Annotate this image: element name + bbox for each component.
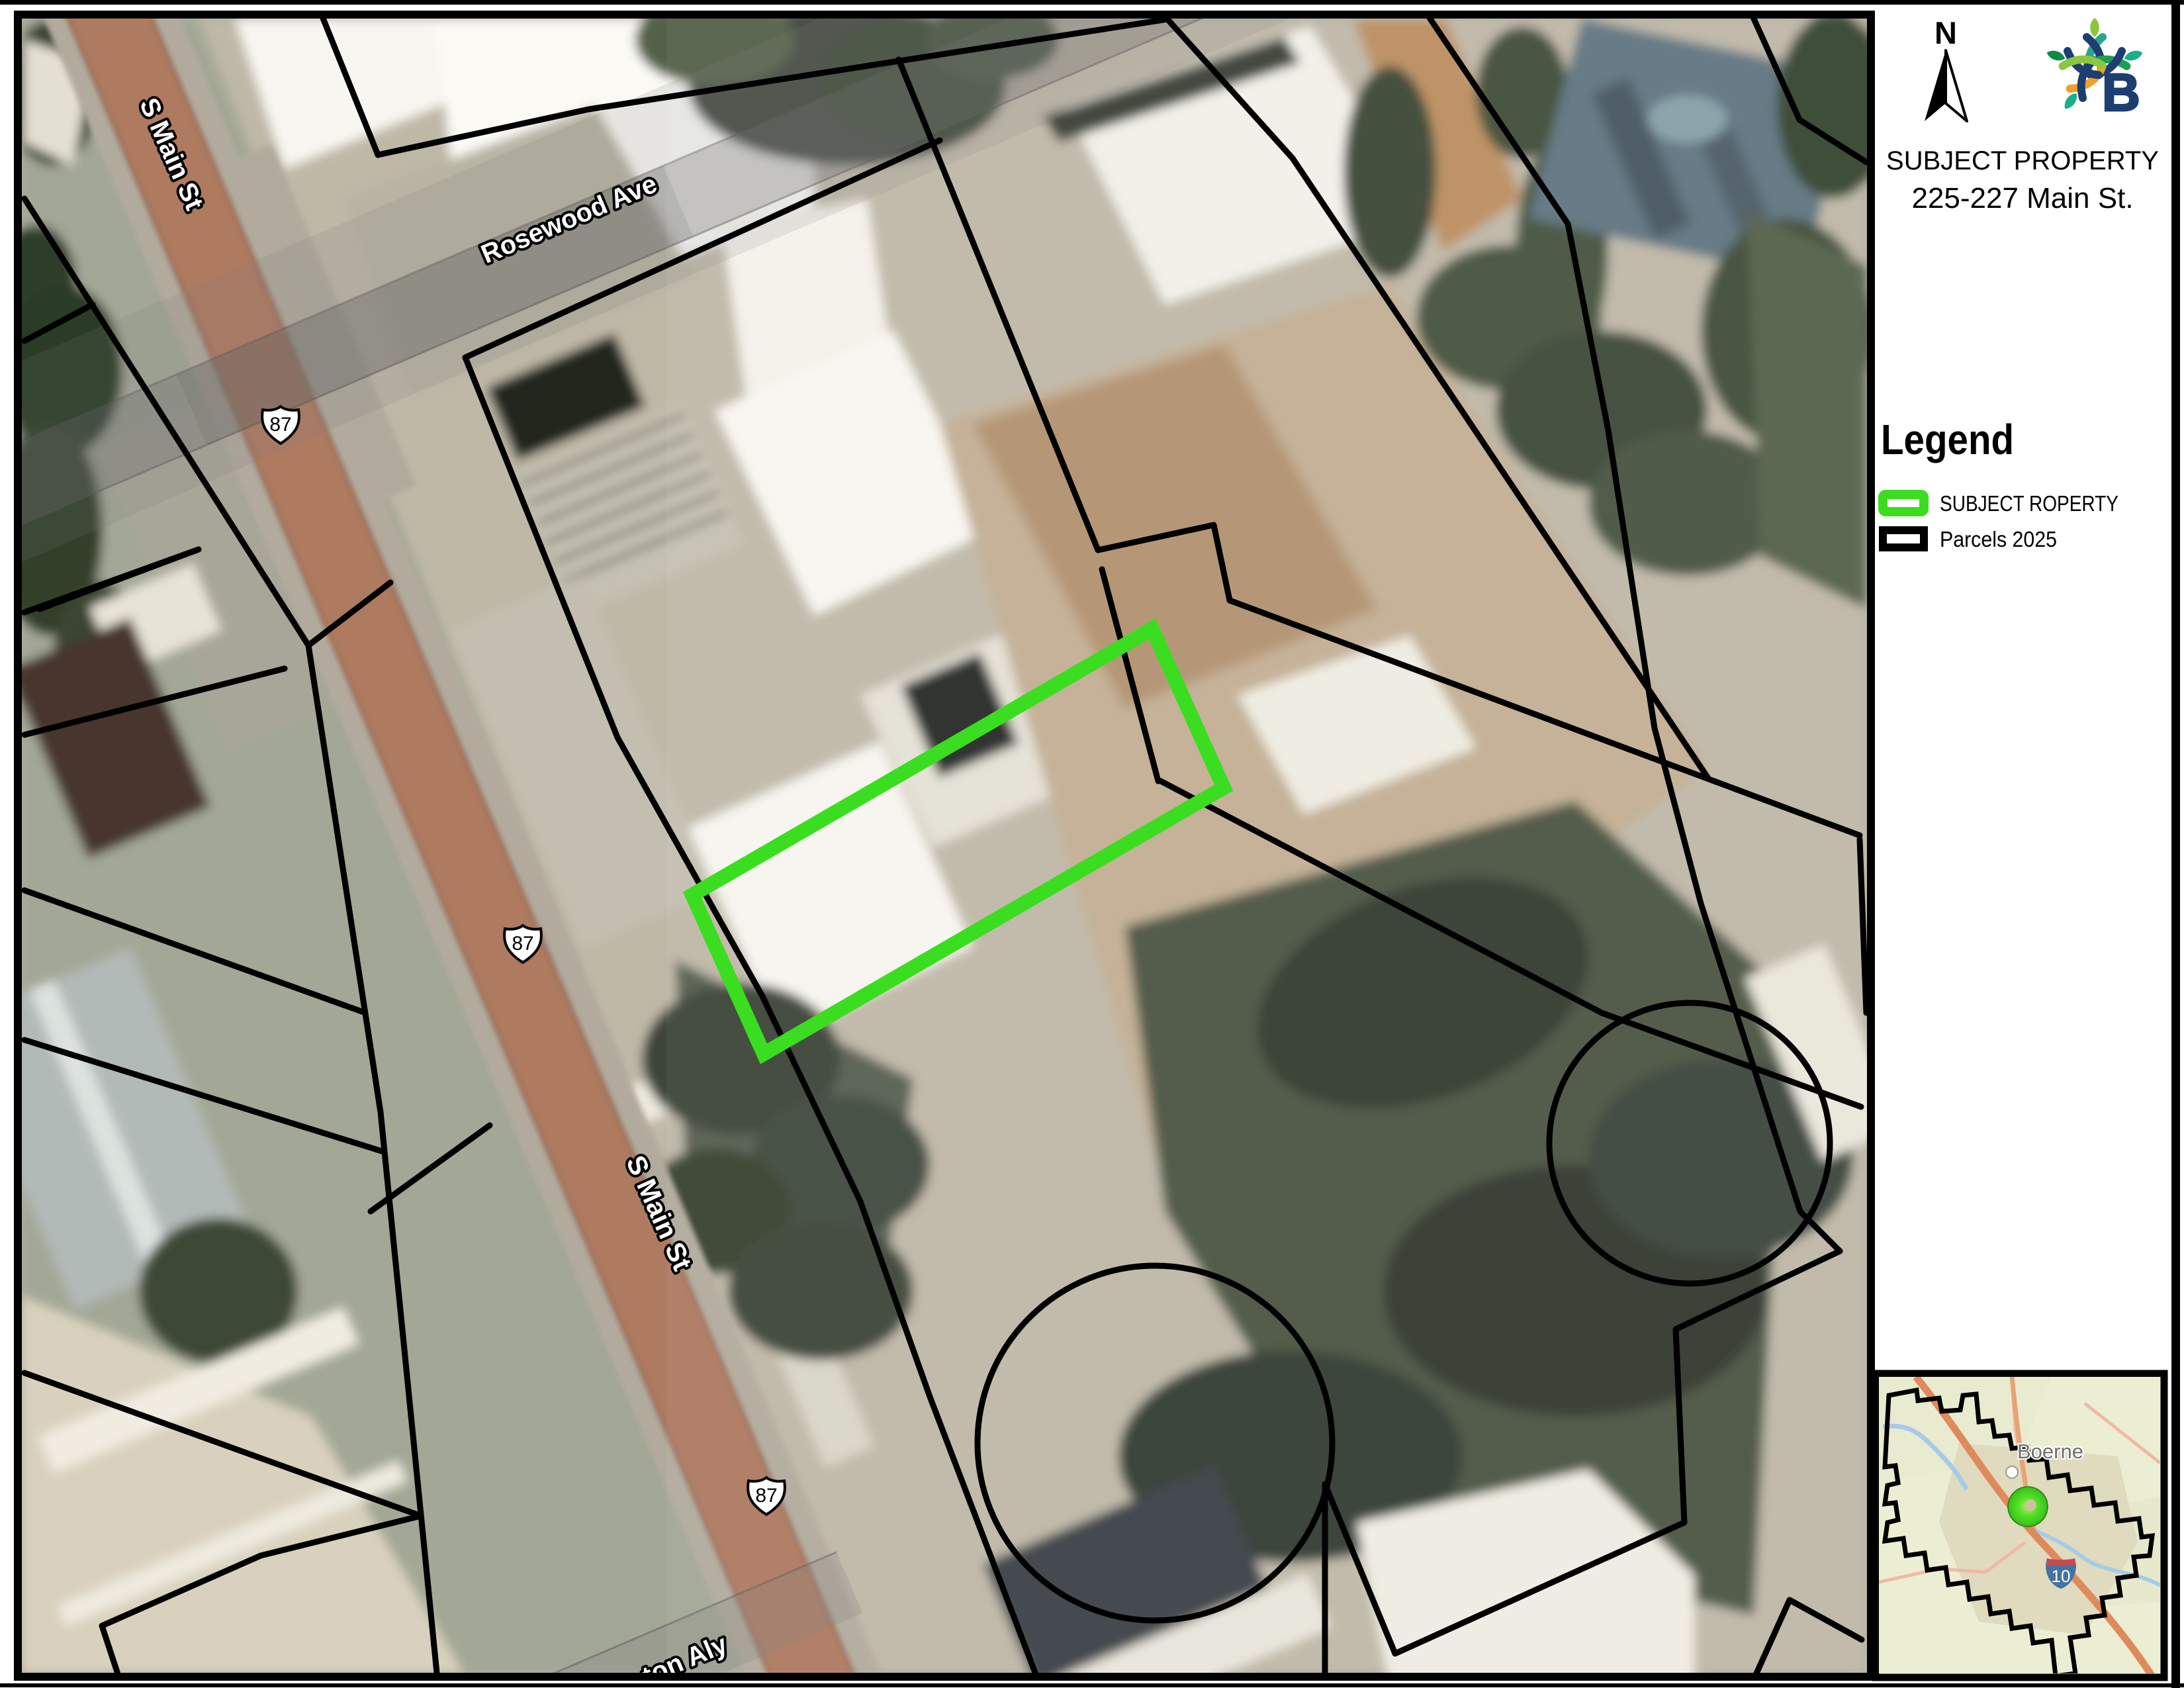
svg-text:Boerne: Boerne bbox=[2017, 1440, 2083, 1463]
svg-text:87: 87 bbox=[512, 933, 533, 955]
svg-text:N: N bbox=[1934, 15, 1957, 50]
svg-text:Parcels 2025: Parcels 2025 bbox=[1940, 527, 2057, 551]
svg-text:225-227 Main St.: 225-227 Main St. bbox=[1911, 182, 2133, 214]
svg-text:Legend: Legend bbox=[1881, 416, 2014, 463]
svg-text:SUBJECT ROPERTY: SUBJECT ROPERTY bbox=[1940, 491, 2118, 516]
svg-text:SUBJECT PROPERTY: SUBJECT PROPERTY bbox=[1886, 146, 2159, 175]
svg-text:10: 10 bbox=[2052, 1566, 2071, 1586]
svg-text:87: 87 bbox=[755, 1485, 777, 1507]
svg-text:87: 87 bbox=[269, 414, 291, 436]
svg-text:B: B bbox=[2102, 63, 2140, 122]
